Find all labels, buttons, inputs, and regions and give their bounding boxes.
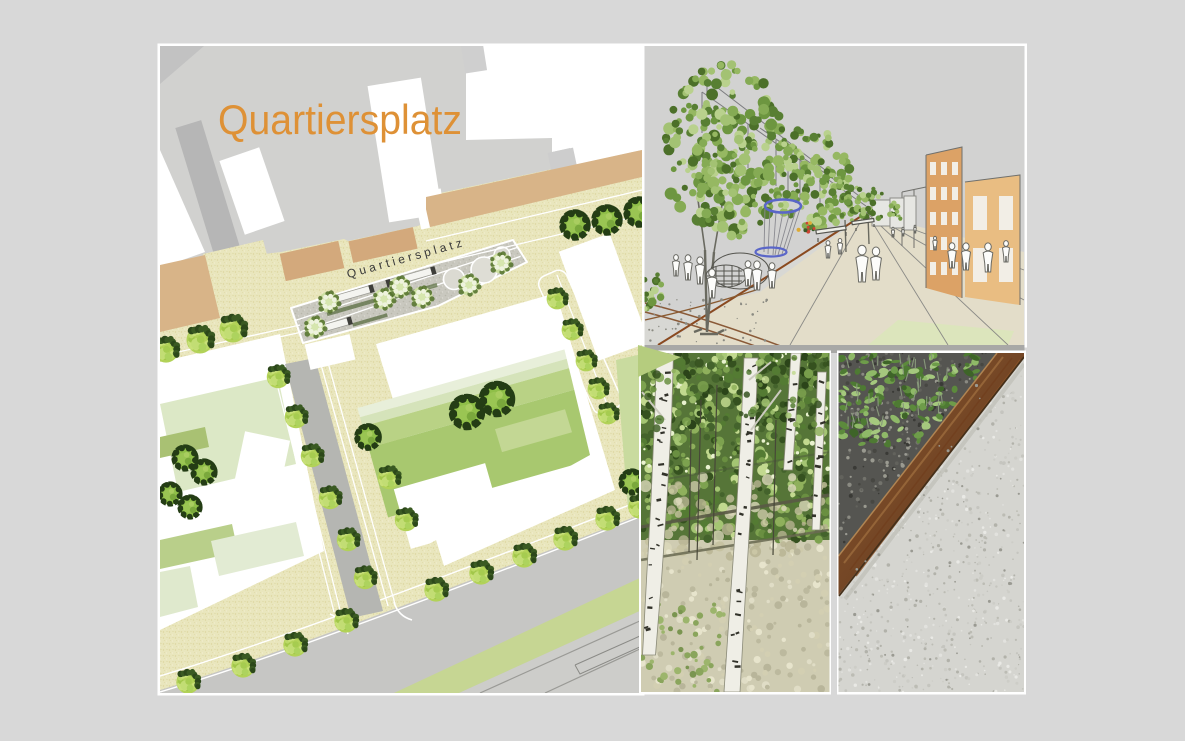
svg-text:Quartiersplatz: Quartiersplatz [218,96,462,143]
